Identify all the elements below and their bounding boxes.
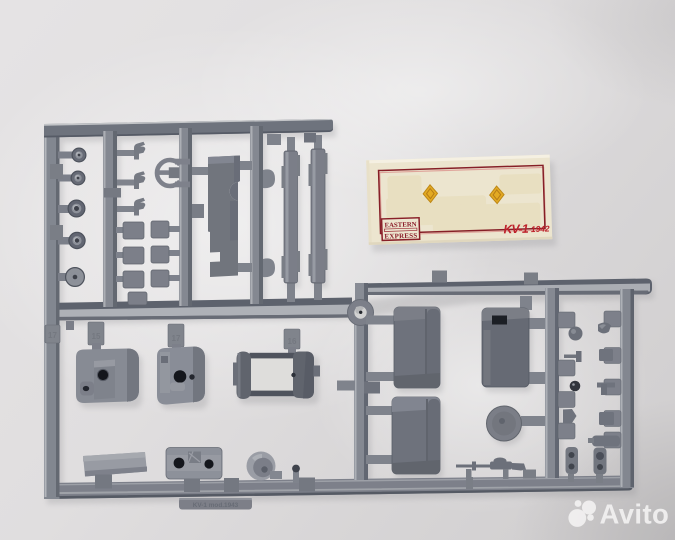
svg-text:Avito: Avito [600,499,670,530]
